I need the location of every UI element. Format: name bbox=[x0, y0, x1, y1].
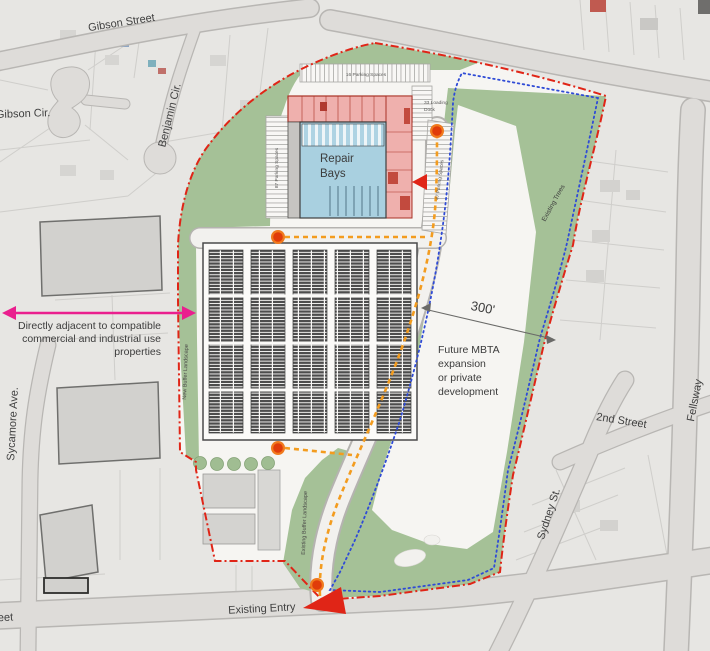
loading-dock-label-line1: 33 Loading bbox=[424, 100, 448, 106]
site-plan-map: Gibson Street Gibson Cir. Benjamin Cir. … bbox=[0, 0, 710, 651]
adjacent-building-1 bbox=[40, 216, 162, 296]
mbta-note-line2: expansion bbox=[438, 358, 486, 370]
building-detail-cell bbox=[400, 196, 410, 210]
left-parking-count-label: 87 Parking Spaces bbox=[274, 147, 280, 188]
loading-dock-label-line2: Dock bbox=[424, 107, 436, 113]
repair-bay-doors bbox=[302, 124, 384, 146]
mbta-note-line1: Future MBTA bbox=[438, 344, 500, 356]
pond-blob-small bbox=[424, 535, 440, 545]
adjacent-note-line2: commercial and industrial use bbox=[22, 333, 161, 345]
building-detail-cell bbox=[404, 108, 410, 124]
adjacent-building-2 bbox=[57, 382, 160, 464]
mbta-note-line4: development bbox=[438, 386, 498, 398]
repair-bays-label-line2: Bays bbox=[320, 168, 346, 180]
adjacent-building-4 bbox=[44, 578, 88, 593]
adjacent-note-line3: properties bbox=[114, 346, 161, 358]
gibson-cir-label: Gibson Cir. bbox=[0, 107, 50, 121]
bus-parking-yard bbox=[203, 243, 417, 440]
adjacent-note-line1: Directly adjacent to compatible bbox=[18, 320, 161, 332]
building-west-bar bbox=[288, 122, 300, 218]
street-partial-label: Street bbox=[0, 611, 13, 625]
adjacent-building-3 bbox=[40, 505, 98, 582]
site-plan-canvas: Gibson Street Gibson Cir. Benjamin Cir. … bbox=[0, 0, 710, 651]
mbta-note-line3: or private bbox=[438, 372, 482, 384]
top-parking-count-label: 16 Parking Spaces bbox=[346, 72, 387, 78]
building-detail-cell bbox=[388, 172, 398, 184]
repair-bays-label-line1: Repair bbox=[320, 153, 354, 165]
building-detail-cell bbox=[320, 102, 327, 111]
